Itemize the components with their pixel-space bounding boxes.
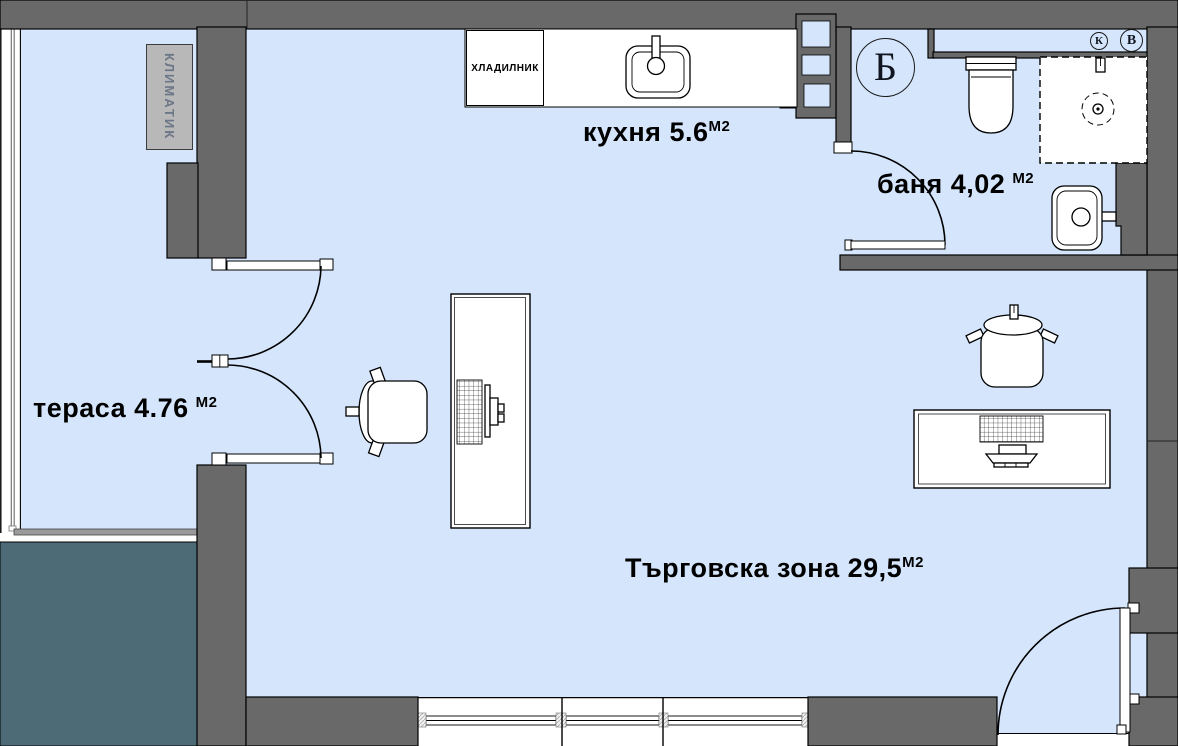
desk — [451, 294, 530, 528]
kitchen-area-unit: М2 — [708, 118, 730, 135]
floor-plan: ХЛАДИЛНИК КЛИМАТИК кухня 5.6М2 баня 4,02… — [0, 0, 1178, 746]
toilet — [966, 57, 1016, 133]
riser-k-marker: К — [1090, 32, 1108, 50]
room-label-commercial: Търговска зона 29,5М2 — [625, 553, 924, 584]
room-label-kitchen: кухня 5.6М2 — [583, 117, 730, 148]
terrace-edge — [0, 529, 197, 542]
bath-area-unit: М2 — [1012, 170, 1034, 187]
entrance-door — [998, 603, 1139, 735]
office-chair — [346, 367, 427, 456]
commercial-area-unit: М2 — [902, 554, 924, 571]
entrance-threshold — [997, 733, 1129, 746]
desk-keyboard — [457, 380, 482, 444]
terrace-double-door — [197, 258, 333, 465]
terrace-window-left — [0, 27, 21, 537]
shower — [1040, 57, 1147, 163]
table-keyboard — [980, 416, 1043, 442]
terrace-area-unit: М2 — [196, 394, 218, 411]
section-marker: Б — [856, 38, 915, 97]
room-label-bath: баня 4,02М2 — [877, 169, 1034, 200]
riser-v-marker: В — [1120, 29, 1143, 52]
fridge-box: ХЛАДИЛНИК — [466, 30, 544, 106]
pot — [966, 305, 1058, 387]
side-table — [914, 410, 1110, 488]
bathroom-sink — [1052, 186, 1116, 250]
air-conditioner-label: КЛИМАТИК — [162, 53, 177, 140]
outside-ground — [0, 542, 197, 746]
air-conditioner-box: КЛИМАТИК — [146, 44, 193, 150]
room-label-terrace: тераса 4.76М2 — [33, 393, 218, 424]
fridge-label: ХЛАДИЛНИК — [471, 63, 539, 74]
